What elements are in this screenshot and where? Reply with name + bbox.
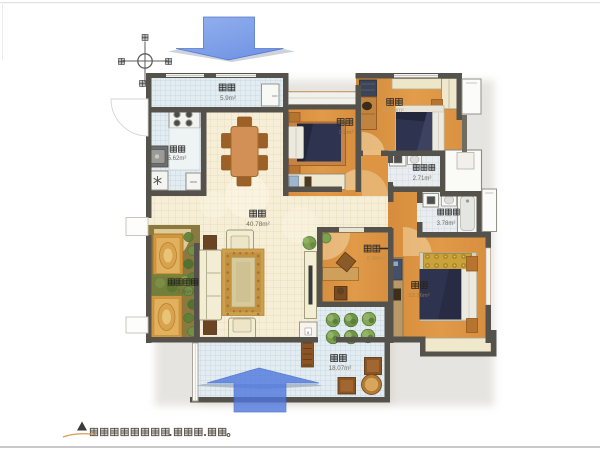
svg-text:9.2m²: 9.2m² [339, 130, 354, 136]
svg-text:18.07m²: 18.07m² [329, 365, 352, 372]
svg-text:3.78m²: 3.78m² [437, 221, 456, 227]
svg-text:10.79m²: 10.79m² [382, 108, 404, 114]
svg-text:7.06m²: 7.06m² [177, 290, 195, 296]
svg-text:5.62m²: 5.62m² [168, 156, 187, 162]
svg-text:5.9m²: 5.9m² [220, 95, 236, 102]
svg-text:40.78m²: 40.78m² [246, 221, 269, 228]
svg-text:6.98m²: 6.98m² [367, 256, 385, 262]
svg-text:13.26m²: 13.26m² [408, 293, 429, 299]
svg-text:2.71m²: 2.71m² [413, 176, 432, 182]
